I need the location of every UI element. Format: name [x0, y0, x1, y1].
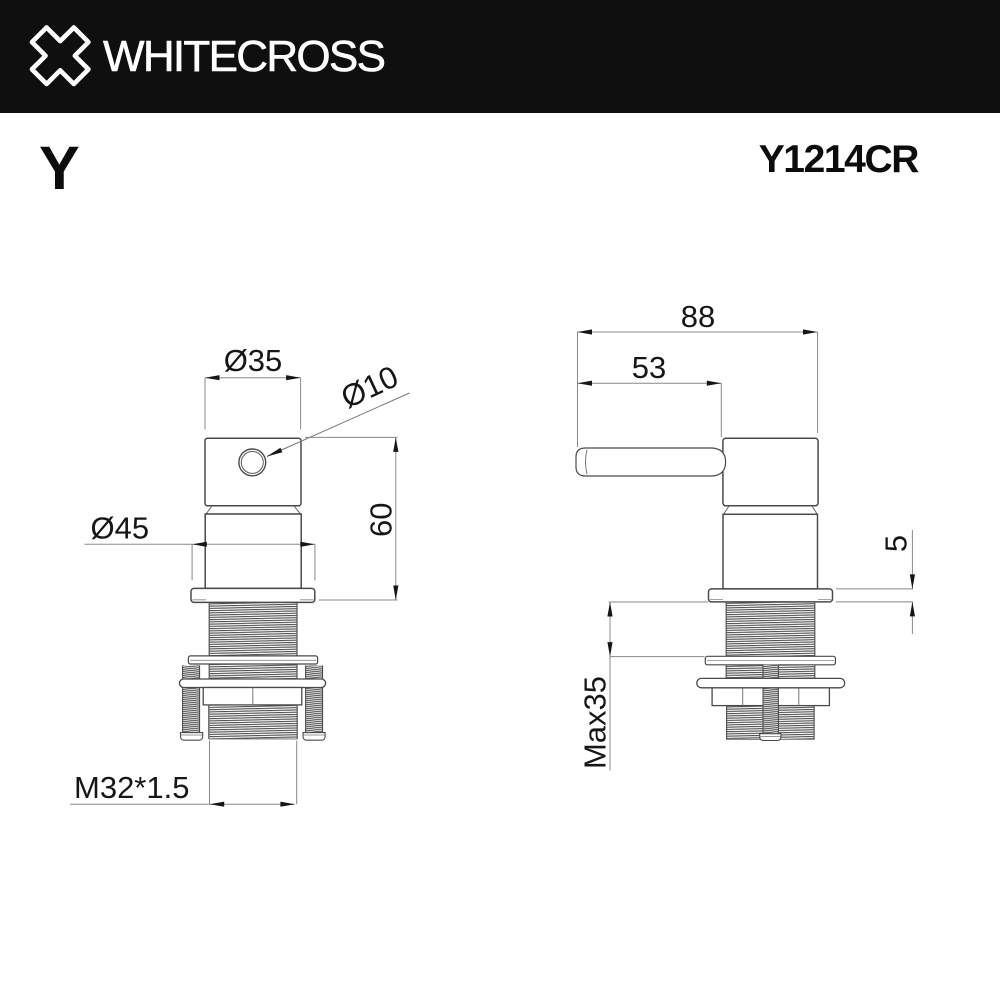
svg-text:Max35: Max35 [578, 676, 613, 769]
svg-text:5: 5 [879, 535, 914, 552]
svg-text:Ø35: Ø35 [224, 343, 283, 378]
svg-text:Ø10: Ø10 [336, 359, 404, 415]
svg-text:53: 53 [632, 350, 666, 385]
svg-text:Ø45: Ø45 [91, 511, 150, 546]
svg-text:88: 88 [681, 299, 715, 334]
svg-text:M32*1.5: M32*1.5 [74, 770, 189, 805]
svg-text:60: 60 [363, 503, 398, 537]
